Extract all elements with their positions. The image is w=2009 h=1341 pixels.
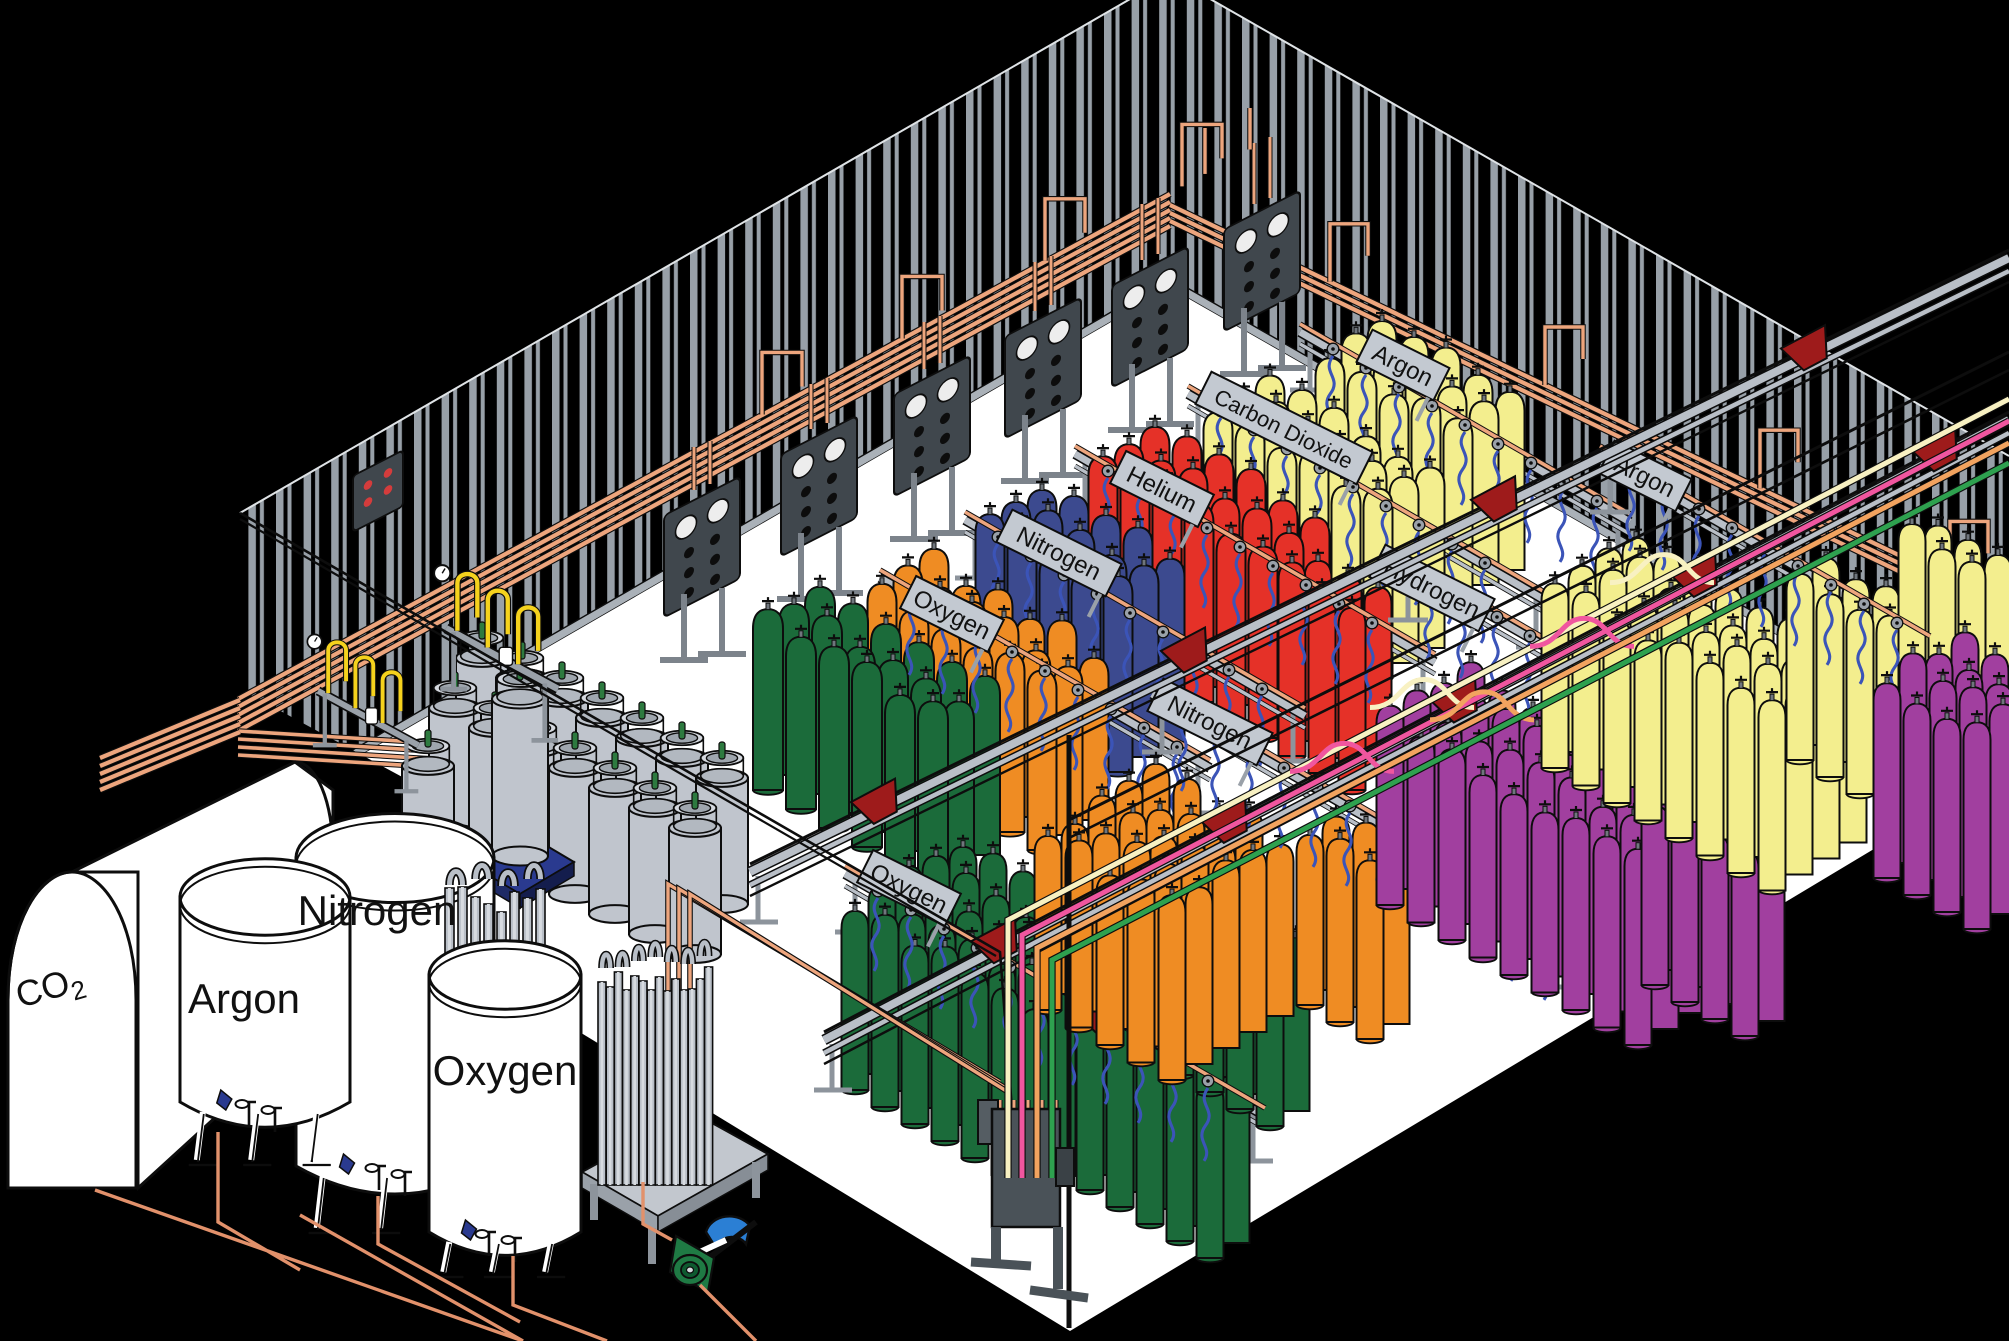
svg-text:Nitrogen: Nitrogen xyxy=(298,887,457,934)
svg-text:Oxygen: Oxygen xyxy=(433,1047,578,1094)
svg-text:Argon: Argon xyxy=(188,975,300,1022)
